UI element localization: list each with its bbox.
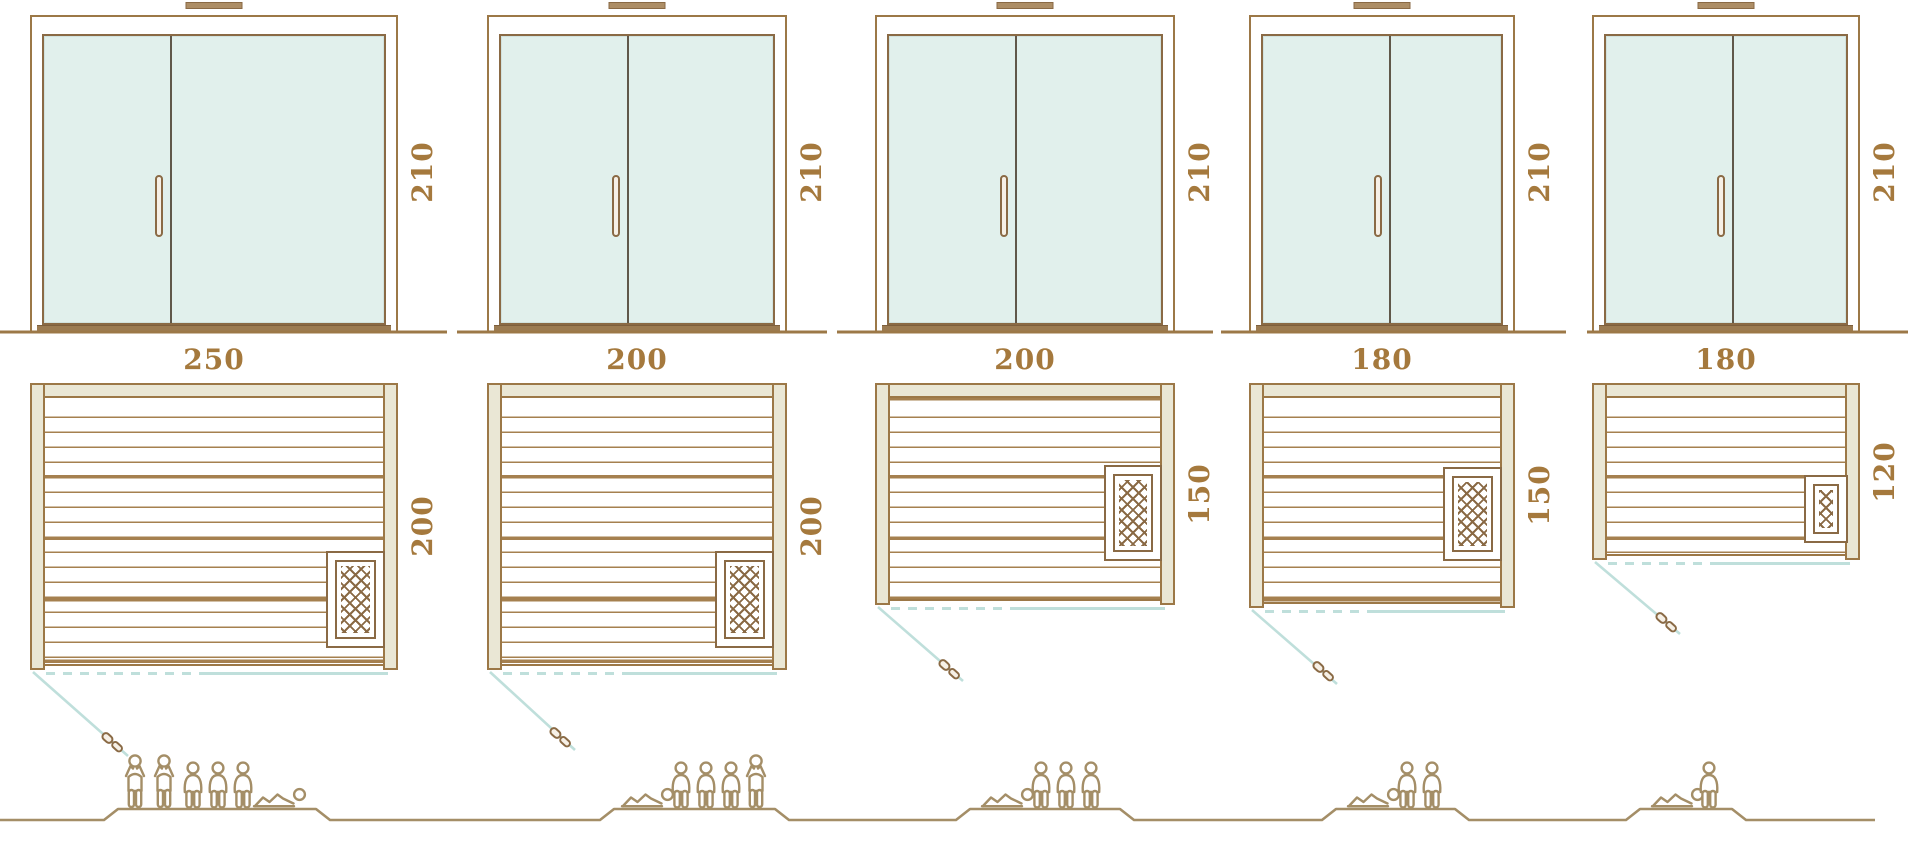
door-sill xyxy=(1256,325,1508,331)
plan-width-label: 180 xyxy=(1249,342,1515,378)
glass-front-line xyxy=(1718,562,1850,565)
glass-door-panels xyxy=(42,34,386,325)
plan-depth-label: 150 xyxy=(1494,477,1584,513)
back-wall xyxy=(1592,383,1860,398)
door-handle-icon xyxy=(1717,175,1725,237)
left-wall xyxy=(1592,383,1607,560)
door-height-label: 210 xyxy=(1494,154,1584,190)
heater-icon xyxy=(326,551,385,648)
roof-vent-icon xyxy=(186,2,243,9)
plan-width-label: 200 xyxy=(875,342,1175,378)
door-height-label: 210 xyxy=(1839,154,1920,190)
left-wall xyxy=(487,383,502,670)
door-elevation xyxy=(30,15,398,331)
door-height-label: 210 xyxy=(766,154,856,190)
back-wall xyxy=(487,383,787,398)
door-sill xyxy=(37,325,391,331)
left-wall xyxy=(30,383,45,670)
door-elevation xyxy=(1592,15,1860,331)
sauna-unit-3: 210 200 150 xyxy=(875,0,1175,856)
door-divider xyxy=(1015,36,1017,323)
door-opening-dashed-line xyxy=(1265,610,1382,613)
door-height-label: 210 xyxy=(377,154,467,190)
heater-lattice xyxy=(1452,476,1493,552)
plan-depth-label: 200 xyxy=(766,508,856,544)
glass-front-line xyxy=(203,672,388,675)
door-handle-icon xyxy=(1000,175,1008,237)
floor-plan xyxy=(487,383,787,670)
back-wall xyxy=(875,383,1175,398)
door-divider xyxy=(1389,36,1391,323)
door-opening-dashed-line xyxy=(46,672,208,675)
sauna-unit-1: 210 250 200 xyxy=(30,0,398,856)
door-elevation xyxy=(487,15,787,331)
door-elevation xyxy=(875,15,1175,331)
glass-door-panels xyxy=(887,34,1163,325)
door-elevation xyxy=(1249,15,1515,331)
left-wall xyxy=(1249,383,1264,608)
heater-lattice xyxy=(1113,474,1153,552)
plan-depth-label: 120 xyxy=(1839,454,1920,490)
heater-icon xyxy=(715,551,774,648)
glass-front-line xyxy=(628,672,777,675)
door-divider xyxy=(170,36,172,323)
door-handle-icon xyxy=(612,175,620,237)
roof-vent-icon xyxy=(609,2,666,9)
heater-lattice xyxy=(335,560,376,639)
door-opening-dashed-line xyxy=(503,672,635,675)
plan-depth-label: 200 xyxy=(377,508,467,544)
door-sill xyxy=(1599,325,1853,331)
sauna-unit-4: 210 180 150 xyxy=(1249,0,1515,856)
back-wall xyxy=(1249,383,1515,398)
door-divider xyxy=(627,36,629,323)
glass-front-line xyxy=(1016,607,1165,610)
door-handle-icon xyxy=(155,175,163,237)
heater-lattice xyxy=(1813,484,1839,534)
floor-plan xyxy=(30,383,398,670)
door-handle-icon xyxy=(1374,175,1382,237)
plan-depth-label: 150 xyxy=(1154,476,1244,512)
roof-vent-icon xyxy=(997,2,1054,9)
glass-door-panels xyxy=(1604,34,1848,325)
door-divider xyxy=(1732,36,1734,323)
plan-width-label: 200 xyxy=(487,342,787,378)
glass-door-panels xyxy=(499,34,775,325)
door-opening-dashed-line xyxy=(1608,562,1726,565)
floor-plan xyxy=(1592,383,1860,560)
sauna-unit-2: 210 200 200 xyxy=(487,0,787,856)
plan-width-label: 180 xyxy=(1592,342,1860,378)
door-opening-dashed-line xyxy=(891,607,1023,610)
sauna-unit-5: 210 180 120 xyxy=(1592,0,1860,856)
sauna-diagram-canvas: 210 250 200 210 200 xyxy=(0,0,1920,856)
door-sill xyxy=(882,325,1168,331)
glass-door-panels xyxy=(1261,34,1503,325)
floor-plan xyxy=(875,383,1175,605)
floor-plan xyxy=(1249,383,1515,608)
door-height-label: 210 xyxy=(1154,154,1244,190)
glass-front-line xyxy=(1374,610,1505,613)
roof-vent-icon xyxy=(1354,2,1411,9)
plan-width-label: 250 xyxy=(30,342,398,378)
heater-lattice xyxy=(724,560,765,639)
door-sill xyxy=(494,325,780,331)
back-wall xyxy=(30,383,398,398)
roof-vent-icon xyxy=(1698,2,1755,9)
left-wall xyxy=(875,383,890,605)
